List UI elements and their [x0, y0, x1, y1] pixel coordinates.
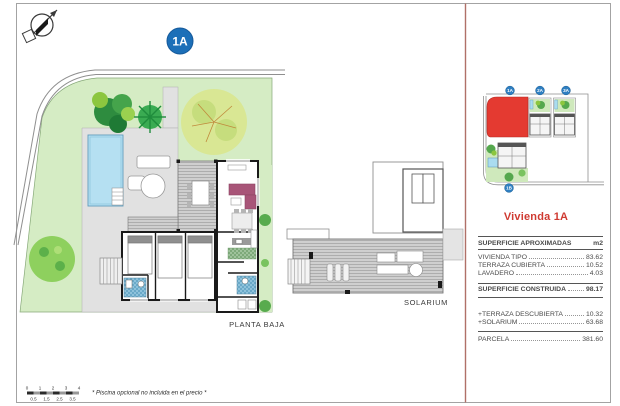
scale-tick: 2.5	[56, 397, 63, 402]
plot-1a-highlight	[487, 97, 528, 137]
unit-badge-label: 1A	[172, 35, 188, 49]
surface-table: SUPERFICIE APROXIMADAS m2 VIVIENDA TIPO …	[478, 236, 603, 344]
pool-footnote: * Piscina opcional no incluida en el pre…	[92, 391, 207, 397]
table-row: +SOLARIUM 63.68	[478, 319, 603, 327]
dot-leader	[516, 274, 588, 275]
beds	[128, 236, 212, 278]
plot-2a	[529, 98, 551, 137]
row-value: 10.32	[586, 311, 603, 319]
marker-2a: 2A	[537, 88, 544, 93]
north-arrow-icon	[22, 10, 57, 43]
plot-3a	[554, 98, 576, 137]
row-label: TERRAZA CUBIERTA	[478, 262, 545, 270]
solarium-plan: SOLARIUM	[287, 162, 463, 307]
row-value: 83.62	[586, 254, 603, 262]
table-parcel-row: PARCELA 381.60	[478, 331, 603, 344]
table-body: VIVIENDA TIPO 83.62 TERRAZA CUBIERTA 10.…	[478, 254, 603, 279]
table-extras: +TERRAZA DESCUBIERTA 10.32 +SOLARIUM 63.…	[478, 311, 603, 327]
sun-loungers	[327, 264, 349, 281]
row-value: 10.52	[586, 262, 603, 270]
unit-badge: 1A	[167, 28, 193, 54]
marker-1b: 1B	[506, 186, 513, 191]
marker-1a: 1A	[507, 88, 514, 93]
drawing-canvas: 1A	[0, 0, 620, 406]
marker-3a: 3A	[563, 88, 570, 93]
row-label: VIVIENDA TIPO	[478, 254, 527, 262]
table-total-row: SUPERFICIE CONSTRUIDA 98.17	[478, 283, 603, 298]
exterior-stair	[100, 258, 122, 284]
scale-tick: 3.5	[69, 397, 76, 402]
plot-1b	[486, 143, 528, 182]
scale-tick: 1.5	[43, 397, 50, 402]
table-header-unit: m2	[593, 240, 603, 247]
total-value: 98.17	[586, 286, 603, 294]
table-header-row: SUPERFICIE APROXIMADAS m2	[478, 236, 603, 250]
row-value: 4.03	[590, 270, 603, 278]
row-label: LAVADERO	[478, 270, 514, 278]
scale-tick: 0.5	[30, 397, 37, 402]
pool	[88, 135, 123, 206]
table-header-label: SUPERFICIE APROXIMADAS	[478, 240, 571, 247]
scale-tick: 1	[39, 386, 42, 391]
row-label: +TERRAZA DESCUBIERTA	[478, 311, 563, 319]
dot-leader	[568, 290, 584, 291]
parcel-value: 381.60	[582, 336, 603, 344]
row-value: 63.68	[586, 319, 603, 327]
scale-tick: 4	[78, 386, 81, 391]
site-key-plan: 1A 2A 3A 1B	[484, 86, 605, 192]
table-row: LAVADERO 4.03	[478, 270, 603, 278]
row-label: +SOLARIUM	[478, 319, 517, 327]
total-label: SUPERFICIE CONSTRUIDA	[478, 286, 566, 294]
dot-leader	[519, 323, 584, 324]
solarium-label: SOLARIUM	[404, 298, 448, 307]
table-row: +TERRAZA DESCUBIERTA 10.32	[478, 311, 603, 319]
dot-leader	[565, 315, 584, 316]
dot-leader	[547, 266, 584, 267]
planta-baja-label: PLANTA BAJA	[229, 320, 285, 329]
unit-title: Vivienda 1A	[466, 211, 606, 223]
scale-tick: 0	[26, 386, 29, 391]
table-row: TERRAZA CUBIERTA 10.52	[478, 262, 603, 270]
parcel-label: PARCELA	[478, 336, 509, 344]
scale-tick: 3	[65, 386, 68, 391]
table-row: VIVIENDA TIPO 83.62	[478, 254, 603, 262]
scale-tick: 2	[52, 386, 55, 391]
dot-leader	[511, 340, 580, 341]
planta-baja-plan: PLANTA BAJA	[14, 70, 285, 329]
scale-bar: 0 1 2 3 4 0.5 1.5 2.5 3.5	[26, 386, 81, 402]
garden-tree	[29, 236, 75, 282]
dot-leader	[529, 258, 584, 259]
large-tree	[181, 89, 247, 155]
solarium-stair	[288, 259, 310, 284]
plan-sheet: 1A	[0, 0, 620, 406]
